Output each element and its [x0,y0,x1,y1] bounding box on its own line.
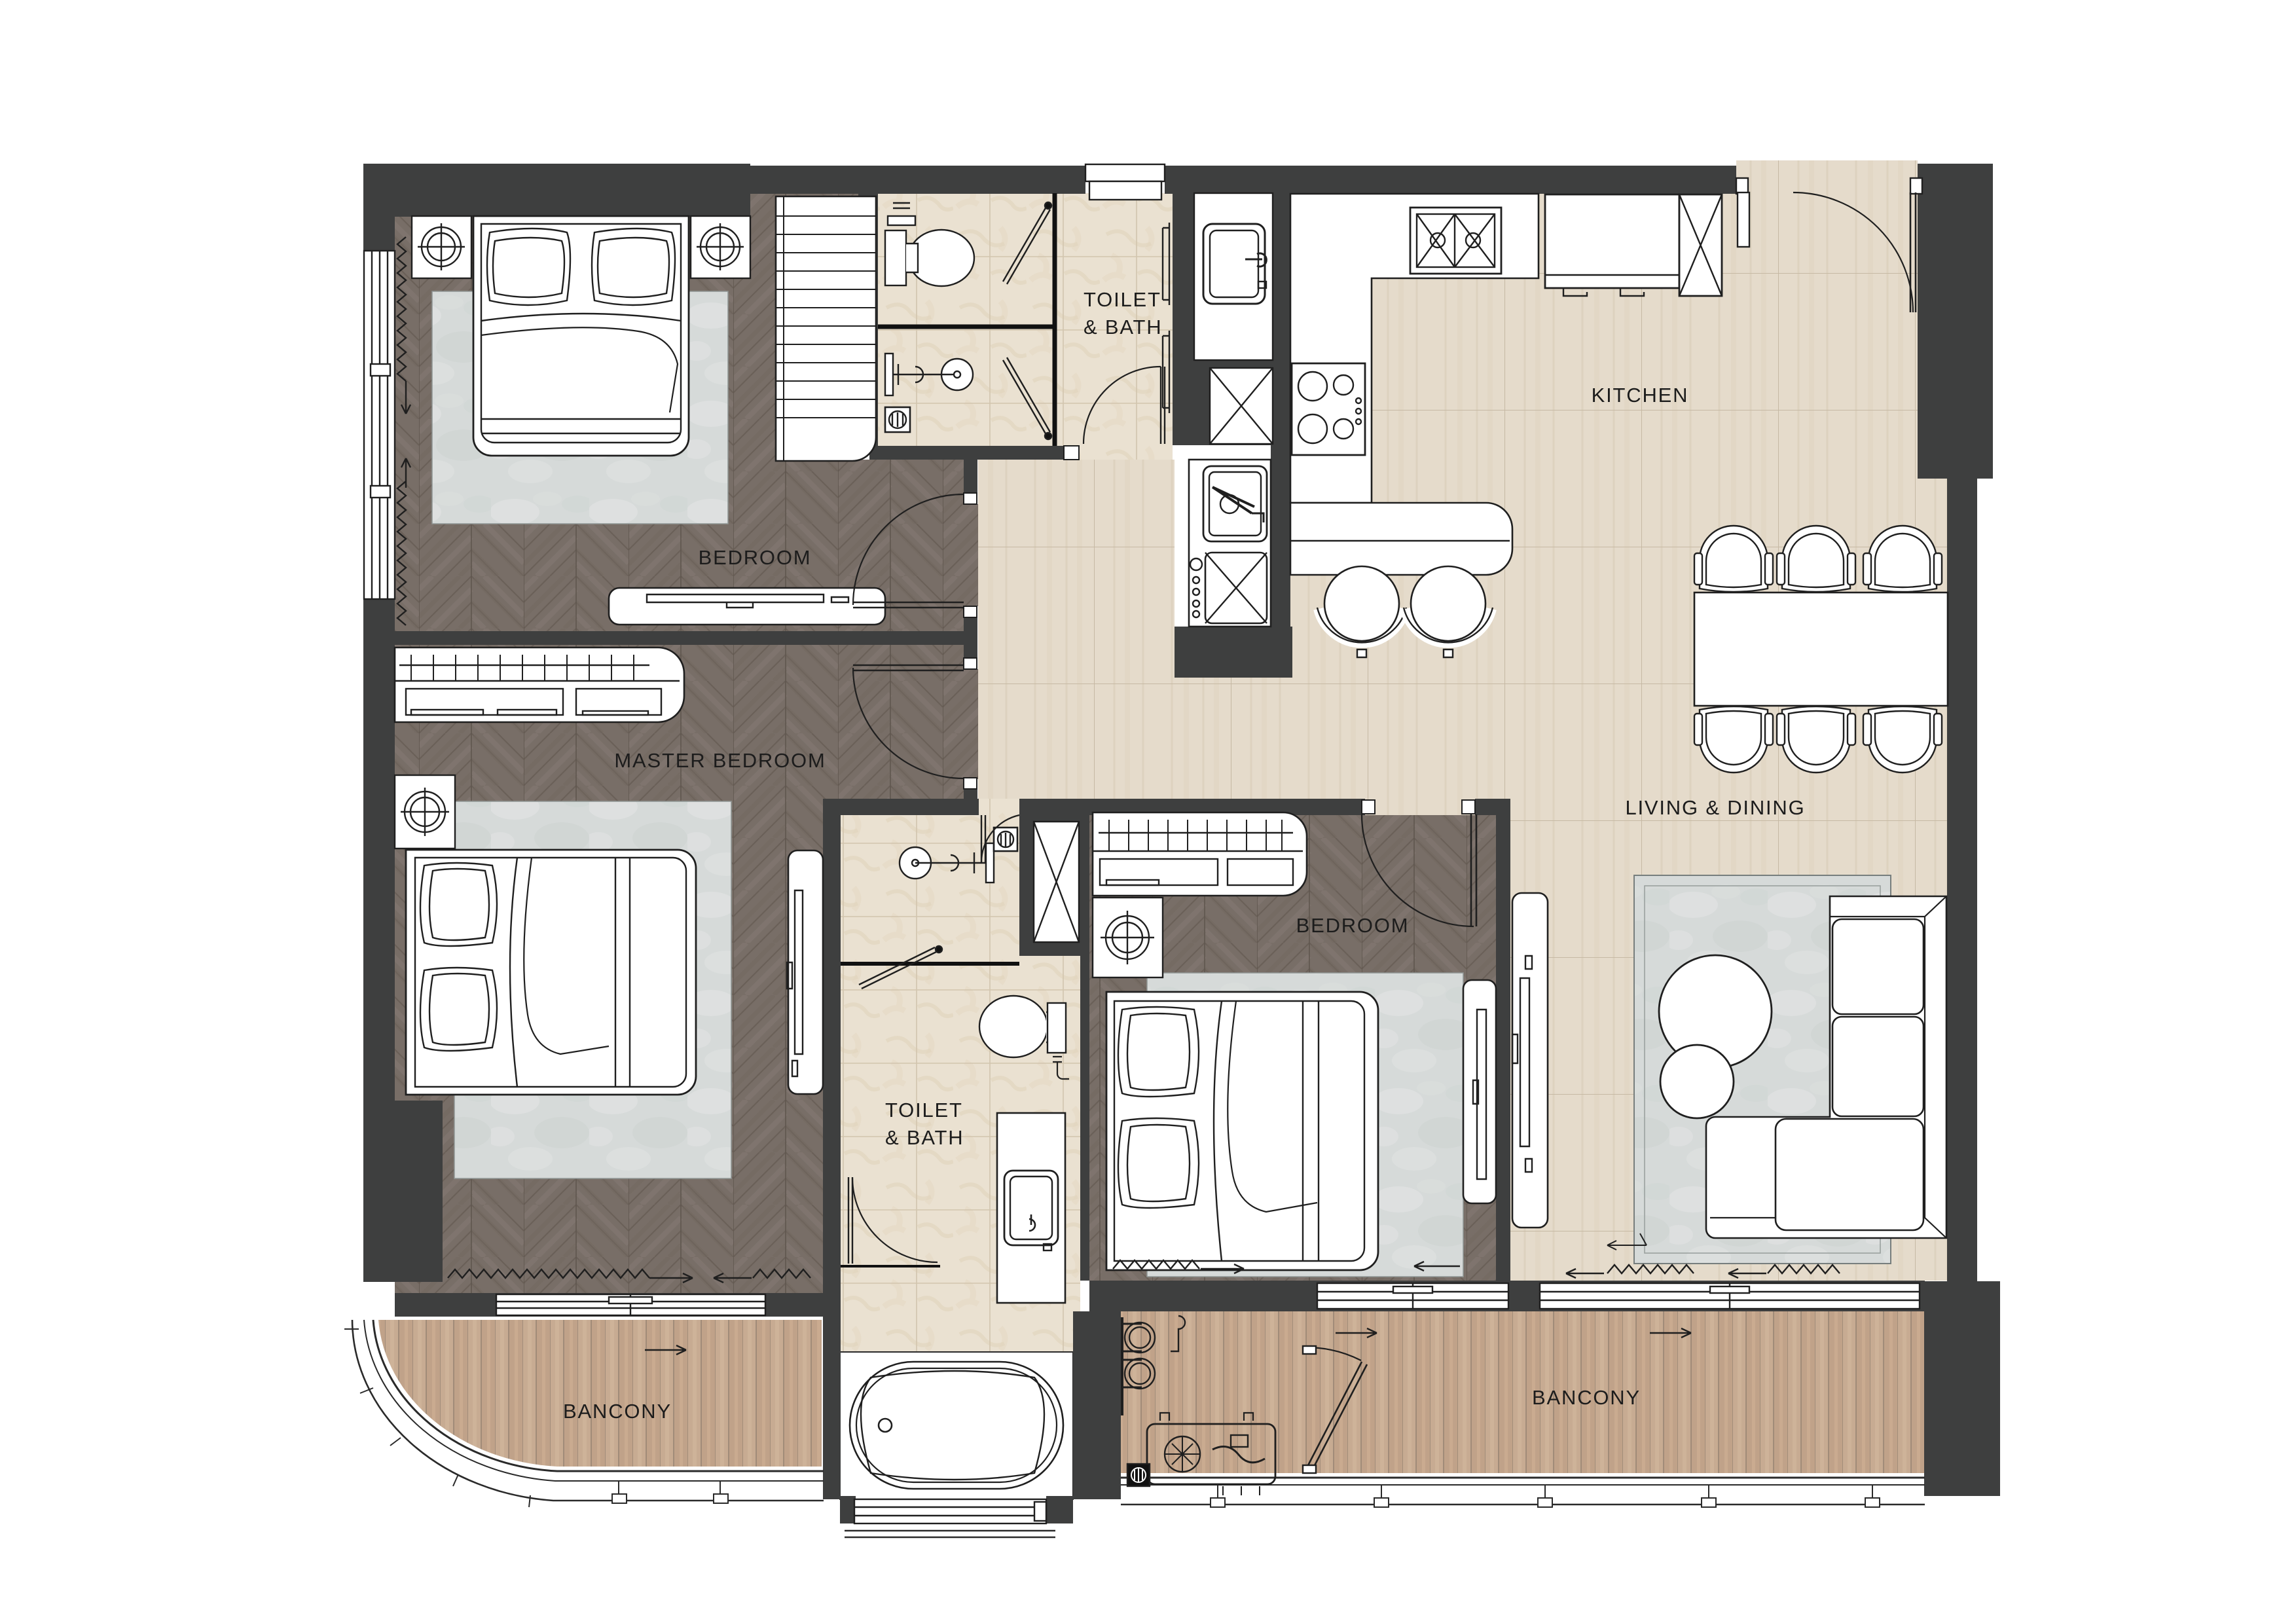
svg-text:& BATH: & BATH [1084,316,1162,338]
svg-text:& BATH: & BATH [885,1126,964,1149]
svg-text:LIVING & DINING: LIVING & DINING [1625,796,1805,819]
svg-text:TOILET: TOILET [885,1099,963,1122]
svg-text:TOILET: TOILET [1084,288,1161,311]
svg-text:KITCHEN: KITCHEN [1592,384,1689,407]
svg-text:BEDROOM: BEDROOM [699,546,812,569]
svg-text:BANCONY: BANCONY [1532,1386,1641,1409]
svg-text:BANCONY: BANCONY [563,1400,672,1423]
svg-text:MASTER BEDROOM: MASTER BEDROOM [614,749,826,772]
svg-text:BEDROOM: BEDROOM [1296,914,1410,937]
